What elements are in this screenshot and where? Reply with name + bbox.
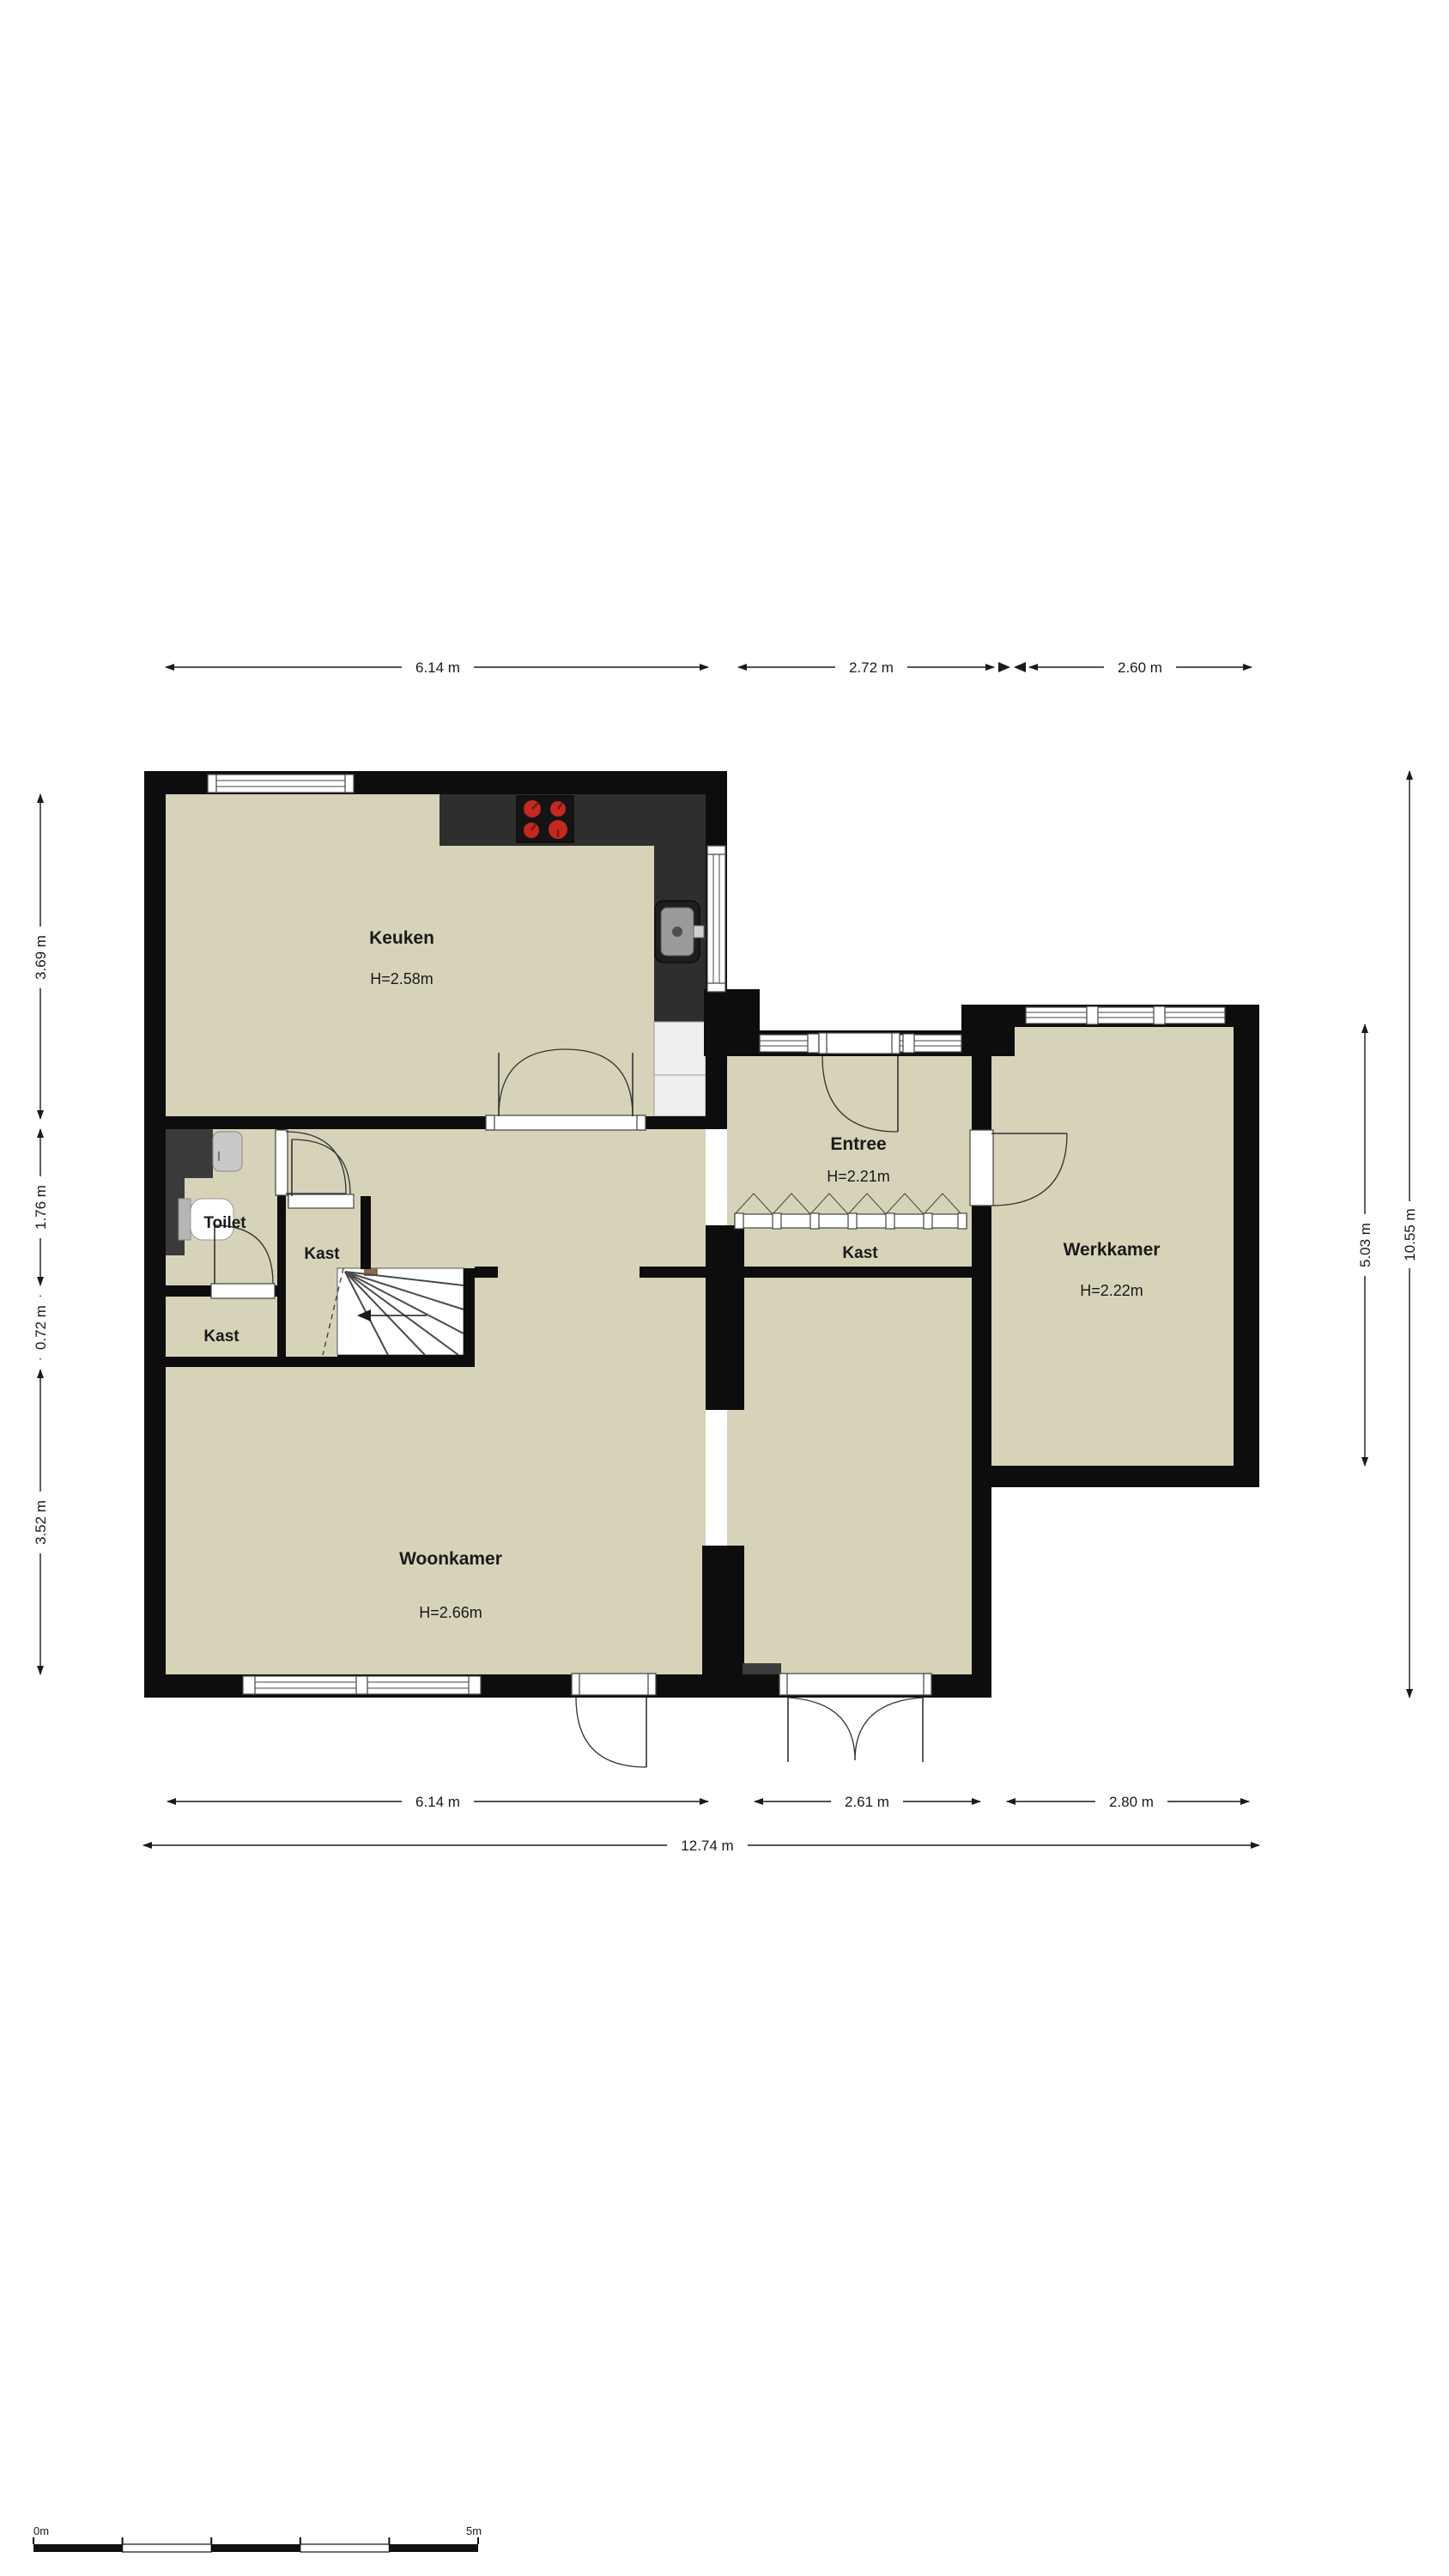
- wall-stairs-right: [464, 1268, 475, 1367]
- dim-top-entree: 2.72 m: [849, 659, 894, 676]
- wall-notch-gray: [743, 1663, 781, 1674]
- wall-corridor-right: [640, 1267, 706, 1278]
- room-label-kast-woonkamer: Kast: [203, 1327, 239, 1346]
- window-kitchen-top: [208, 775, 354, 793]
- dim-bottom-woonkamer: 6.14 m: [415, 1794, 460, 1810]
- room-label-keuken: Keuken: [369, 928, 434, 948]
- door-terrace-single: [572, 1674, 656, 1767]
- room-label-entree: Entree: [830, 1134, 886, 1154]
- floorplan-page: Keuken H=2.58m Toilet Kast Kast Kast Ent…: [0, 0, 1449, 2576]
- wall-entree-werkkamer-chunk: [961, 1005, 1015, 1056]
- dimensions-top: 6.14 m 2.72 m 2.60 m: [166, 657, 1252, 677]
- dim-right-total: 10.55 m: [1402, 1208, 1418, 1261]
- dim-left-woonkamer: 3.52 m: [33, 1500, 49, 1545]
- toilet-counter: [166, 1129, 213, 1178]
- room-height-werkkamer: H=2.22m: [1080, 1282, 1143, 1299]
- dim-top-keuken: 6.14 m: [415, 659, 460, 676]
- dim-left-toilet: 1.76 m: [33, 1185, 49, 1230]
- dim-top-werkkamer: 2.60 m: [1118, 659, 1162, 676]
- dim-bottom-werkkamer: 2.80 m: [1109, 1794, 1154, 1810]
- wall-kitchen-bottom-right: [640, 1116, 727, 1129]
- room-height-keuken: H=2.58m: [370, 970, 433, 987]
- window-kitchen-right: [707, 846, 725, 992]
- wall-stub-upper: [706, 1225, 744, 1410]
- hand-basin: [213, 1132, 242, 1171]
- dimensions-right: 5.03 m 10.55 m: [1354, 771, 1421, 1698]
- dimensions-bottom: 6.14 m 2.61 m 2.80 m 12.74 m: [143, 1791, 1259, 1856]
- wall-corridor-left-jamb: [475, 1267, 498, 1278]
- dimensions-left: 3.69 m 1.76 m 0.72 m 3.52 m: [29, 794, 52, 1674]
- dim-right-werkkamer: 5.03 m: [1357, 1223, 1373, 1267]
- wall-woonkamer-top-left: [166, 1357, 337, 1367]
- floor-left-block: [166, 794, 706, 1674]
- wall-entree-top-left-chunk: [704, 989, 760, 1056]
- wall-kitchen-bottom-left: [144, 1116, 492, 1129]
- kitchen-appliance: [654, 1022, 706, 1116]
- wall-kast-hal-right: [361, 1196, 371, 1269]
- window-werkkamer-top: [1026, 1006, 1225, 1024]
- wall-stairs-bottom: [337, 1355, 475, 1367]
- floorplan-drawing: Keuken H=2.58m Toilet Kast Kast Kast Ent…: [0, 0, 1449, 2576]
- dim-bottom-middle: 2.61 m: [845, 1794, 889, 1810]
- scale-bar: 0m 5m: [33, 2524, 482, 2552]
- wall-werkkamer-right: [1234, 1005, 1259, 1487]
- scale-bar-end-label: 5m: [466, 2524, 482, 2537]
- dim-left-kast: 0.72 m: [33, 1305, 49, 1350]
- room-height-woonkamer: H=2.66m: [419, 1604, 482, 1621]
- dim-bottom-total: 12.74 m: [681, 1838, 733, 1854]
- scale-bar-segments: [33, 2544, 478, 2552]
- dim-left-keuken: 3.69 m: [33, 935, 49, 980]
- wall-outer-left: [144, 771, 166, 1698]
- room-label-werkkamer: Werkkamer: [1064, 1240, 1161, 1260]
- staircase: [323, 1268, 464, 1355]
- kitchen-sink: [655, 901, 704, 963]
- scale-bar-ticks: [33, 2537, 478, 2544]
- wall-kast-entree-south: [744, 1267, 972, 1278]
- window-woonkamer-bottom: [243, 1676, 481, 1694]
- room-height-entree: H=2.21m: [827, 1168, 890, 1185]
- room-label-toilet: Toilet: [203, 1214, 246, 1232]
- wall-werkkamer-bottom: [972, 1466, 1259, 1487]
- door-terrace-double: [779, 1674, 931, 1762]
- scale-bar-start-label: 0m: [33, 2524, 49, 2537]
- room-label-kast-entree: Kast: [842, 1244, 878, 1262]
- room-label-woonkamer: Woonkamer: [399, 1549, 502, 1569]
- wall-stub-lower: [702, 1546, 744, 1674]
- room-label-kast-hal: Kast: [304, 1245, 340, 1263]
- dim-top-wall-ticks: [998, 662, 1026, 672]
